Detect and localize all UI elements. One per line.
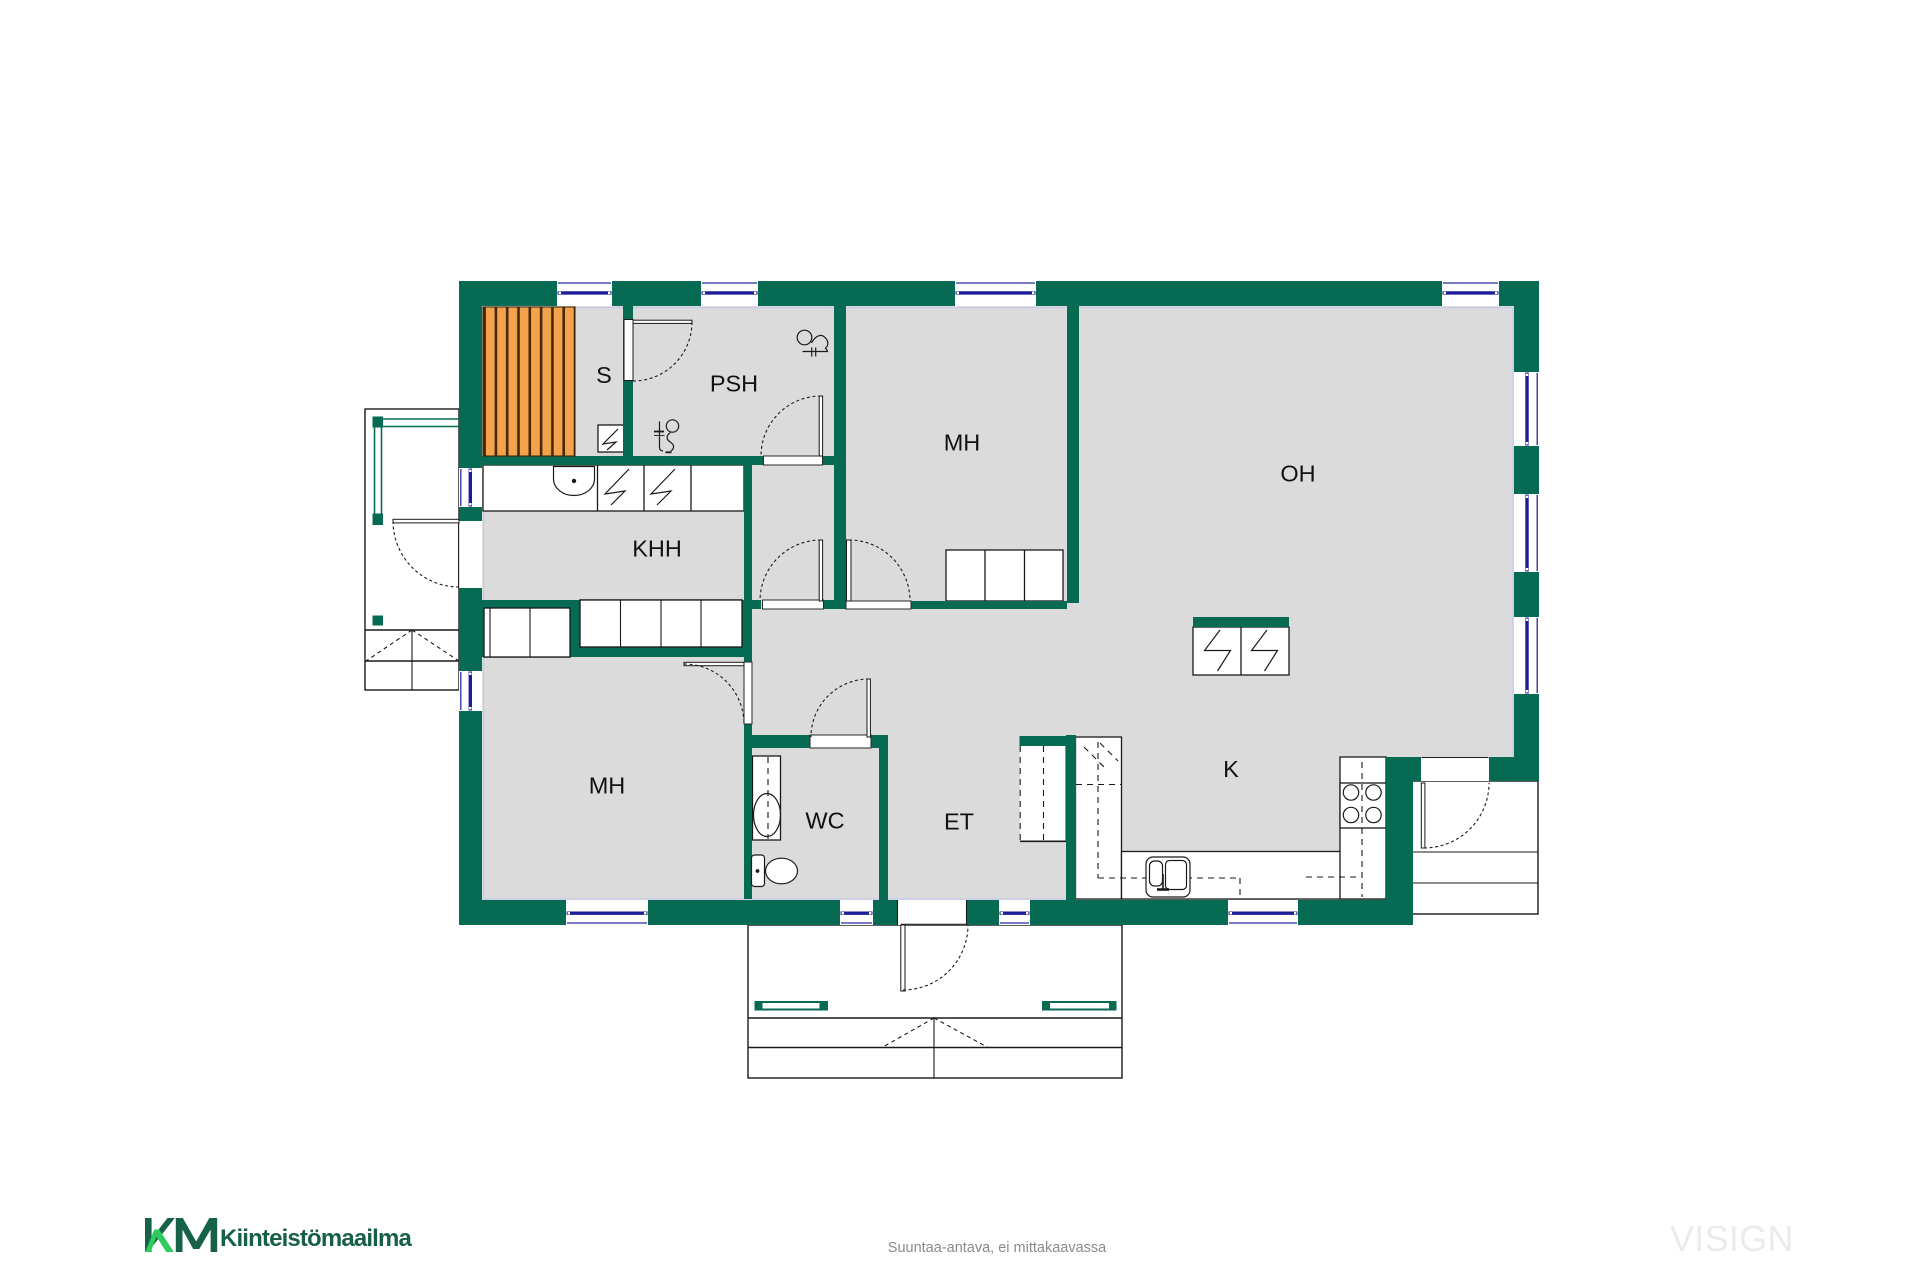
svg-text:Suuntaa-antava, ei mittakaavas: Suuntaa-antava, ei mittakaavassa: [888, 1240, 1107, 1256]
svg-text:MH: MH: [944, 430, 981, 456]
svg-text:PSH: PSH: [710, 371, 758, 397]
svg-text:MH: MH: [589, 773, 626, 799]
svg-text:S: S: [596, 362, 612, 388]
svg-text:K: K: [1223, 756, 1239, 782]
svg-text:KHH: KHH: [632, 536, 682, 562]
svg-text:OH: OH: [1280, 461, 1315, 487]
svg-text:ET: ET: [944, 809, 974, 835]
svg-text:Kiinteistömaailma: Kiinteistömaailma: [220, 1225, 412, 1252]
svg-text:WC: WC: [805, 808, 844, 834]
svg-text:VISIGN: VISIGN: [1670, 1218, 1794, 1259]
